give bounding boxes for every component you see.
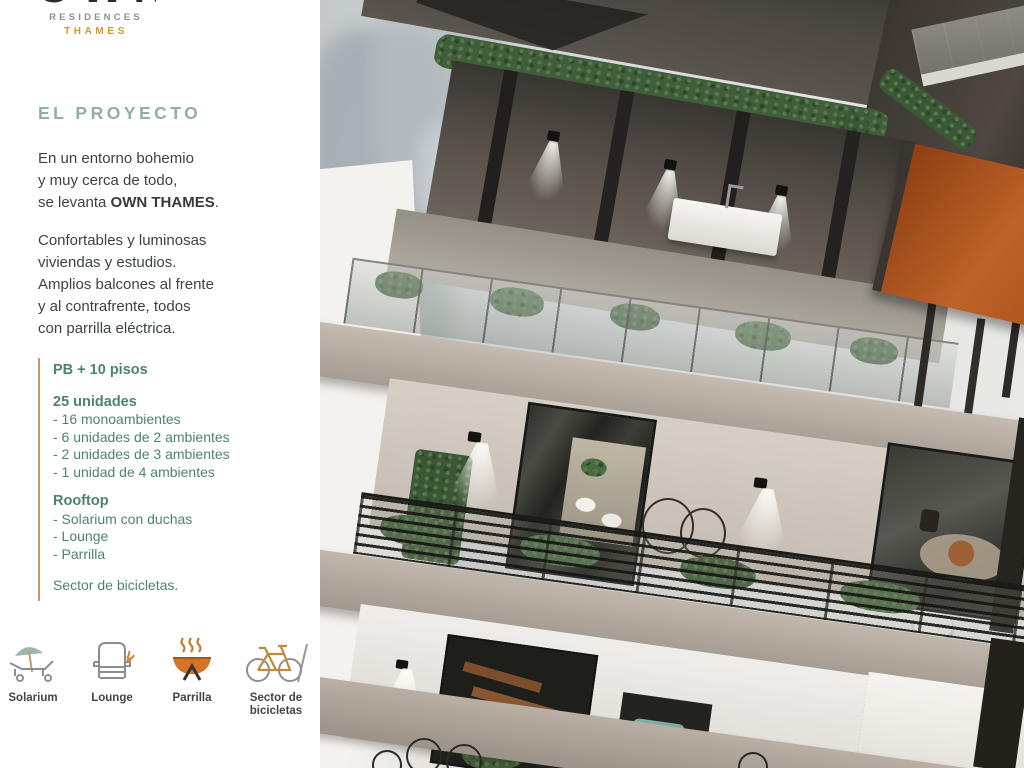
bicycle-icon [238, 636, 314, 686]
desc-line: Confortables y luminosas [38, 230, 214, 252]
rooftop-item: - Solarium con duchas [53, 511, 230, 529]
brand-name: OWN THAMES [111, 194, 215, 211]
desc-line: viviendas y estudios. [38, 252, 214, 274]
intro-line: se levanta OWN THAMES. [38, 192, 219, 214]
sun-lounger-umbrella-icon [2, 636, 64, 686]
unit-item: - 2 unidades de 3 ambientes [53, 446, 230, 464]
building-render [320, 0, 1024, 768]
unit-item: - 16 monoambientes [53, 411, 230, 429]
desc-line: y al contrafrente, todos [38, 296, 214, 318]
pillar [818, 130, 861, 298]
wall-light [775, 185, 789, 197]
wall-light [547, 130, 561, 142]
wall-light [664, 159, 678, 171]
wall-light [467, 431, 481, 443]
amenity-bicicletas: Sector de bicicletas [238, 636, 314, 718]
amenity-label: Solarium [2, 692, 64, 705]
unit-item: - 6 unidades de 2 ambientes [53, 429, 230, 447]
intro-line: En un entorno bohemio [38, 148, 219, 170]
desc-line: con parrilla eléctrica. [38, 318, 214, 340]
rooftop-title: Rooftop [53, 493, 230, 511]
bike-sector-line: Sector de bicicletas. [53, 577, 230, 595]
sidebar: OWN RESIDENCES THAMES EL PROYECTO En un … [0, 0, 320, 768]
logo-thames: THAMES [36, 26, 156, 37]
logo: OWN RESIDENCES THAMES [36, 0, 156, 37]
bicycle-wheel [406, 738, 442, 768]
intro-line: y muy cerca de todo, [38, 170, 219, 192]
page-title: EL PROYECTO [38, 103, 201, 124]
amenities-row: Solarium Lounge [2, 636, 314, 718]
amenity-label: Lounge [82, 692, 142, 705]
rooftop-item: - Lounge [53, 528, 230, 546]
pillar [591, 90, 634, 258]
armchair-icon [82, 636, 142, 686]
logo-residences: RESIDENCES [36, 12, 156, 23]
terrace-chair [919, 509, 940, 533]
amenity-lounge: Lounge [82, 636, 142, 705]
features-block: PB + 10 pisos 25 unidades - 16 monoambie… [38, 358, 230, 601]
lower-interior-white [856, 672, 992, 768]
intro-paragraph: En un entorno bohemio y muy cerca de tod… [38, 148, 219, 214]
wall-light [753, 477, 767, 489]
grill-icon [162, 636, 222, 686]
amenity-label: Parrilla [162, 692, 222, 705]
pillar [475, 69, 518, 237]
floors-line: PB + 10 pisos [53, 362, 230, 380]
desc-line: Amplios balcones al frente [38, 274, 214, 296]
description-paragraph: Confortables y luminosas viviendas y est… [38, 230, 214, 340]
light-cone [511, 136, 582, 225]
amenity-parrilla: Parrilla [162, 636, 222, 705]
rooftop-item: - Parrilla [53, 546, 230, 564]
amenity-solarium: Solarium [2, 636, 64, 705]
logo-mark-cropped: OWN [36, 0, 156, 9]
amenity-label: Sector de bicicletas [246, 692, 306, 718]
wall-lamp [395, 659, 408, 670]
units-title: 25 unidades [53, 394, 230, 412]
brochure-page: OWN RESIDENCES THAMES EL PROYECTO En un … [0, 0, 1024, 768]
unit-item: - 1 unidad de 4 ambientes [53, 464, 230, 482]
